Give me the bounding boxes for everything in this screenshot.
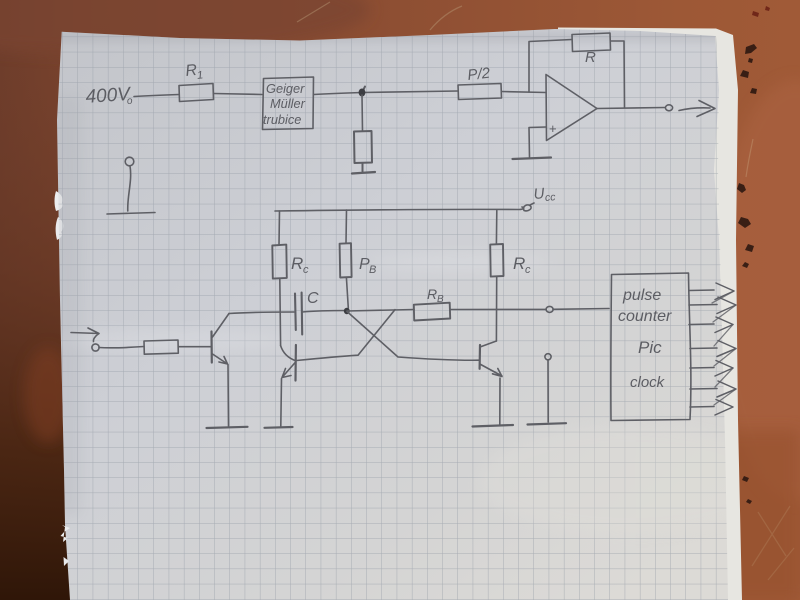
svg-text:R: R bbox=[585, 49, 596, 66]
svg-text:1: 1 bbox=[196, 69, 203, 82]
svg-text:trubice: trubice bbox=[263, 112, 301, 127]
svg-text:+: + bbox=[549, 121, 557, 136]
svg-text:c: c bbox=[303, 264, 309, 276]
svg-text:cc: cc bbox=[544, 191, 556, 204]
svg-text:counter: counter bbox=[618, 308, 672, 325]
svg-text:B: B bbox=[437, 294, 444, 305]
svg-text:R: R bbox=[427, 286, 437, 302]
svg-text:c: c bbox=[525, 264, 531, 276]
svg-text:Müller: Müller bbox=[270, 96, 306, 111]
svg-text:clock: clock bbox=[630, 374, 666, 391]
svg-text:C: C bbox=[307, 290, 319, 307]
svg-text:Geiger: Geiger bbox=[266, 81, 305, 96]
svg-text:Pic: Pic bbox=[638, 338, 662, 357]
svg-text:R: R bbox=[291, 254, 303, 273]
svg-text:R: R bbox=[513, 254, 525, 273]
svg-text:B: B bbox=[369, 264, 376, 276]
svg-text:pulse: pulse bbox=[622, 287, 661, 304]
svg-text:P/2: P/2 bbox=[467, 65, 492, 84]
svg-text:U: U bbox=[533, 185, 545, 203]
